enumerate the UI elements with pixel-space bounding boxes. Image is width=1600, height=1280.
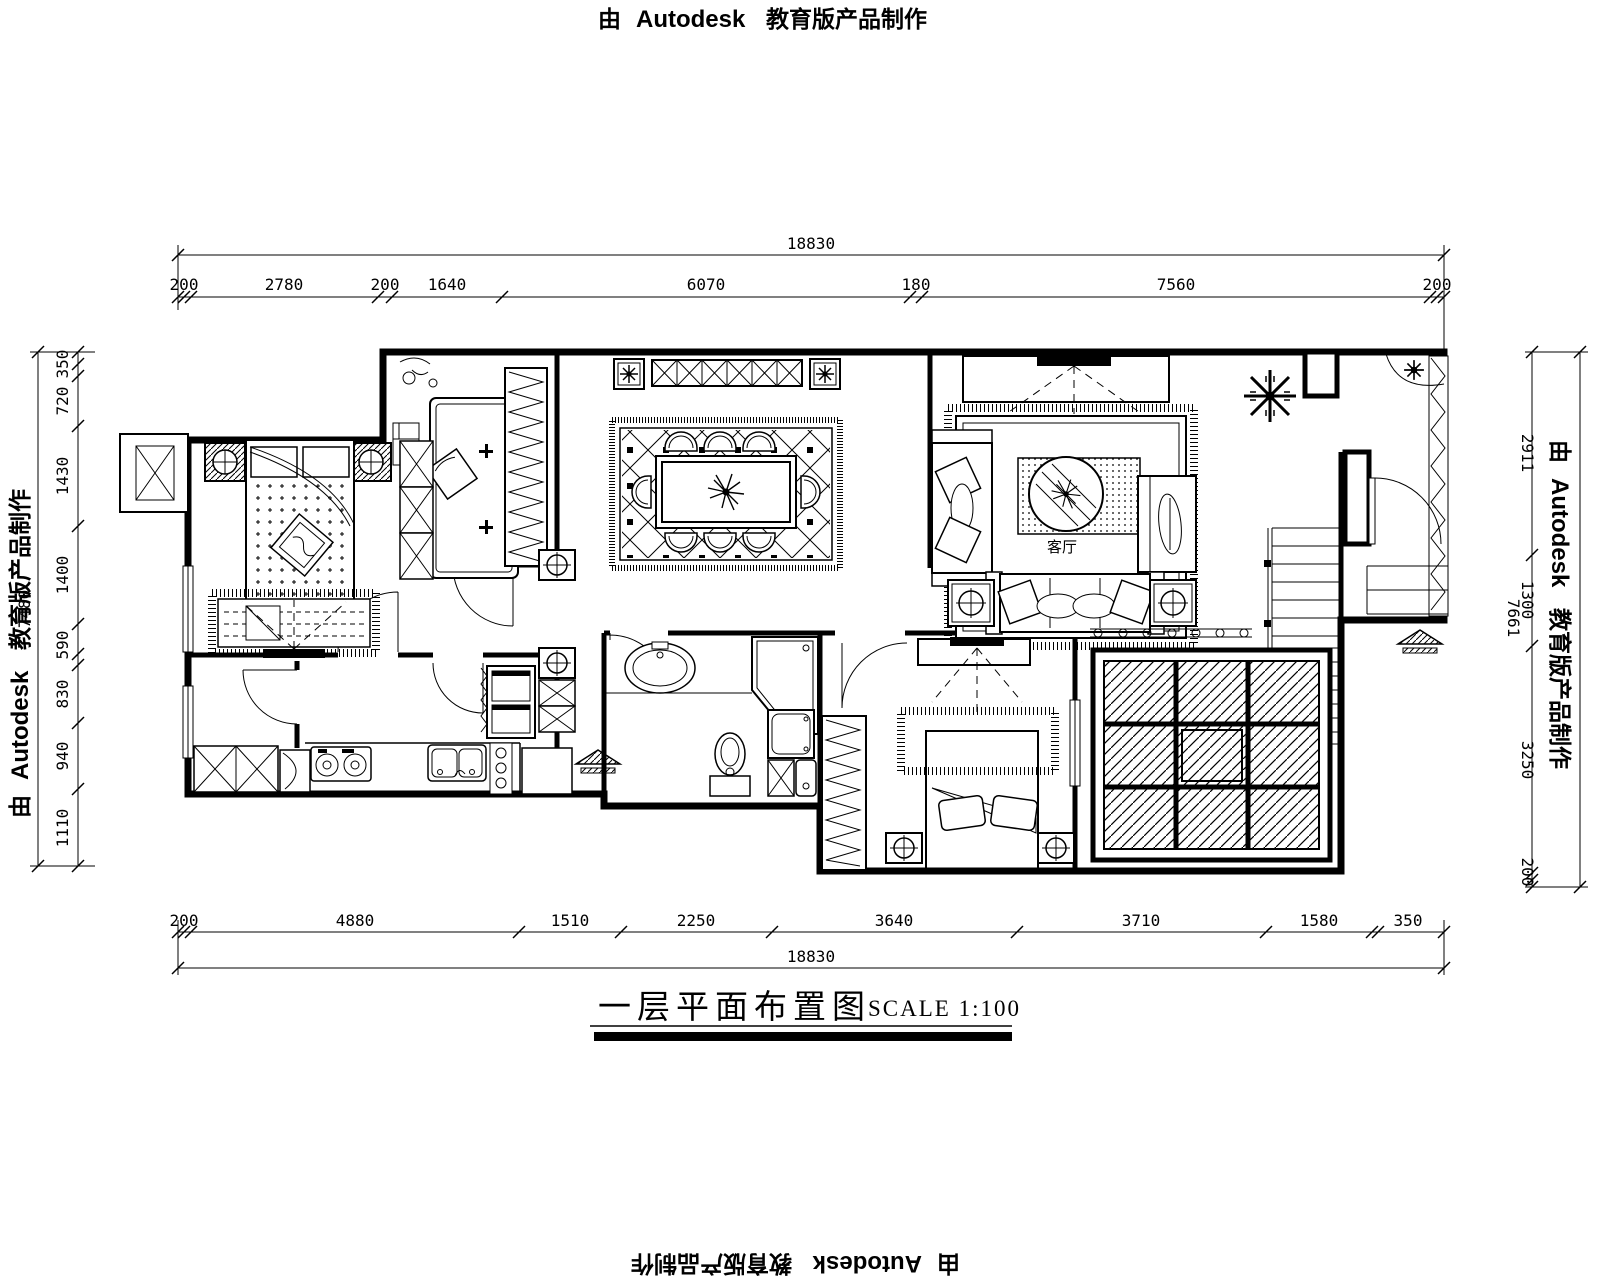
bath-cabinet bbox=[768, 760, 816, 796]
drawing-title: 一层平面布置图 bbox=[598, 989, 871, 1026]
shaft-cabinet bbox=[539, 680, 575, 732]
dim-top-total: 18830 bbox=[787, 234, 835, 253]
svg-text:590: 590 bbox=[53, 631, 72, 660]
direction-marker-kitchen bbox=[576, 750, 620, 773]
armchair-right bbox=[1138, 476, 1196, 572]
elevator-shaft bbox=[120, 434, 188, 512]
sofa-left bbox=[932, 430, 992, 586]
bath-sink bbox=[625, 642, 695, 693]
svg-text:由: 由 bbox=[937, 1250, 960, 1276]
svg-text:180: 180 bbox=[902, 275, 931, 294]
hob-controls bbox=[490, 743, 512, 794]
svg-text:Autodesk: Autodesk bbox=[1546, 478, 1573, 588]
svg-text:7560: 7560 bbox=[1157, 275, 1196, 294]
fridge bbox=[481, 666, 535, 738]
bedroom2-wardrobe bbox=[822, 716, 866, 870]
end-table bbox=[1150, 580, 1196, 626]
watermark-suffix: 教育版产品制作 bbox=[766, 6, 927, 33]
dimension-bottom: 18830 200 4880 1510 2250 3640 3710 1580 … bbox=[170, 911, 1450, 975]
nightstand bbox=[351, 443, 391, 481]
column-pier bbox=[539, 648, 575, 678]
toilet bbox=[710, 733, 750, 796]
kitchen-landing bbox=[522, 748, 572, 794]
bed1 bbox=[246, 440, 354, 605]
dimension-top: 18830 200 2780 200 1640 6070 180 7560 20… bbox=[170, 234, 1452, 352]
dimension-left: 7480 350 720 1430 1400 590 830 940 1110 bbox=[15, 346, 95, 872]
svg-text:3640: 3640 bbox=[875, 911, 914, 930]
watermark-brand: Autodesk bbox=[636, 6, 746, 33]
dimension-right: 7661 2911 1300 3250 200 bbox=[1504, 346, 1588, 893]
bedroom1 bbox=[205, 440, 433, 658]
dining-table bbox=[656, 456, 796, 528]
door-kitchen bbox=[433, 663, 483, 713]
svg-text:1110: 1110 bbox=[53, 809, 72, 848]
washing-machine bbox=[768, 710, 814, 758]
garden-window-band bbox=[1429, 356, 1448, 616]
watermark-left: 由 Autodesk 教育版产品制作 bbox=[7, 489, 34, 818]
door-storage bbox=[243, 670, 297, 724]
svg-text:200: 200 bbox=[1518, 858, 1537, 887]
svg-text:200: 200 bbox=[1423, 275, 1452, 294]
svg-text:由: 由 bbox=[8, 795, 34, 818]
plant-snowflake bbox=[1244, 370, 1296, 422]
svg-text:教育版产品制作: 教育版产品制作 bbox=[1546, 608, 1573, 769]
kitchen-sink bbox=[428, 745, 486, 781]
svg-text:2250: 2250 bbox=[677, 911, 716, 930]
watermark-top: 由 Autodesk 教育版产品制作 bbox=[598, 6, 927, 33]
svg-text:830: 830 bbox=[53, 680, 72, 709]
wardrobe-column bbox=[400, 441, 433, 579]
watermark-prefix: 由 bbox=[598, 7, 621, 33]
bedroom2 bbox=[822, 637, 1074, 871]
dim-bottom-total: 18830 bbox=[787, 947, 835, 966]
svg-text:1510: 1510 bbox=[551, 911, 590, 930]
glass-void bbox=[1093, 650, 1330, 860]
svg-text:350: 350 bbox=[1394, 911, 1423, 930]
title-underline-bar bbox=[594, 1032, 1012, 1041]
direction-marker-right bbox=[1398, 630, 1442, 653]
stove bbox=[311, 747, 371, 781]
svg-text:200: 200 bbox=[170, 275, 199, 294]
door-bedroom2 bbox=[842, 643, 907, 708]
svg-text:1580: 1580 bbox=[1300, 911, 1339, 930]
dining-deco-band bbox=[614, 359, 840, 389]
end-table bbox=[948, 580, 994, 626]
sofa-bottom bbox=[986, 572, 1164, 634]
nightstand bbox=[886, 833, 922, 863]
svg-text:3250: 3250 bbox=[1518, 741, 1537, 780]
watermark-right: 由 Autodesk 教育版产品制作 bbox=[1546, 440, 1573, 769]
center-rug bbox=[1018, 457, 1140, 534]
svg-text:6070: 6070 bbox=[687, 275, 726, 294]
title-block: 一层平面布置图 SCALE 1:100 bbox=[590, 989, 1021, 1041]
dim-left-total: 7480 bbox=[15, 590, 34, 629]
svg-text:1430: 1430 bbox=[53, 457, 72, 496]
svg-text:1300: 1300 bbox=[1518, 581, 1537, 620]
drawing-scale: SCALE 1:100 bbox=[868, 996, 1021, 1021]
watermark-bottom: 由 Autodesk 教育版产品制作 bbox=[631, 1250, 960, 1277]
svg-text:940: 940 bbox=[53, 742, 72, 771]
wall-pier bbox=[1305, 352, 1337, 396]
svg-text:2911: 2911 bbox=[1518, 434, 1537, 473]
svg-text:Autodesk: Autodesk bbox=[7, 670, 34, 780]
kitchen-cabinets bbox=[194, 746, 310, 792]
svg-text:1640: 1640 bbox=[428, 275, 467, 294]
floorplan-canvas: 由 Autodesk 教育版产品制作 由 Autodesk 教育版产品制作 由 … bbox=[0, 0, 1600, 1280]
bathroom bbox=[604, 637, 818, 796]
bedroom2-rug bbox=[901, 711, 1055, 771]
entry-wall-stub bbox=[1345, 452, 1369, 544]
svg-text:3710: 3710 bbox=[1122, 911, 1161, 930]
foyer-wardrobe bbox=[505, 368, 547, 566]
dining-room bbox=[612, 359, 840, 568]
svg-text:200: 200 bbox=[170, 911, 199, 930]
svg-text:由: 由 bbox=[1546, 440, 1572, 463]
svg-text:200: 200 bbox=[371, 275, 400, 294]
svg-text:教育版产品制作: 教育版产品制作 bbox=[631, 1250, 792, 1277]
bed2 bbox=[926, 731, 1038, 871]
tv-bedroom2 bbox=[918, 637, 1030, 714]
column-pier bbox=[539, 550, 575, 580]
svg-text:4880: 4880 bbox=[336, 911, 375, 930]
living-room-label: 客厅 bbox=[1047, 538, 1077, 556]
svg-text:1400: 1400 bbox=[53, 556, 72, 595]
svg-text:2780: 2780 bbox=[265, 275, 304, 294]
nightstand bbox=[205, 443, 245, 481]
nightstand bbox=[1038, 833, 1074, 863]
utility-fixture bbox=[400, 358, 437, 387]
svg-text:350: 350 bbox=[53, 350, 72, 379]
svg-text:720: 720 bbox=[53, 387, 72, 416]
tv-living bbox=[963, 356, 1169, 414]
svg-text:Autodesk: Autodesk bbox=[812, 1250, 922, 1277]
